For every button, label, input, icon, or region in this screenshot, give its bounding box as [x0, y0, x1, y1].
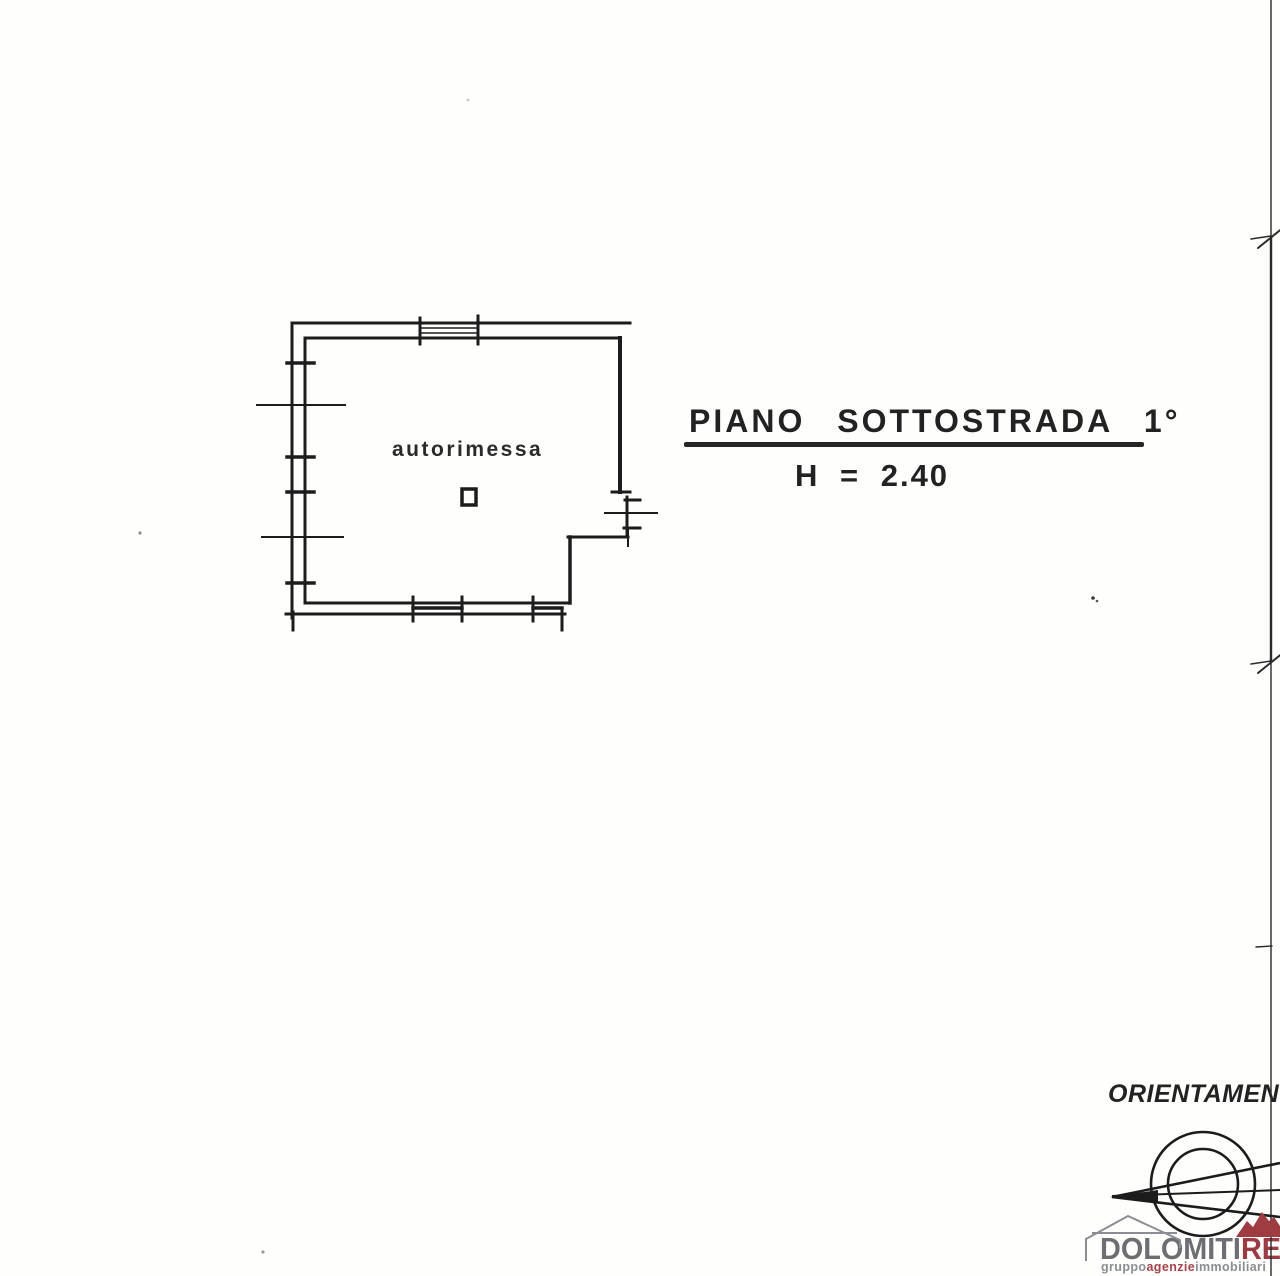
- compass-north-arrow-icon: [1110, 1132, 1280, 1236]
- title-underline: [684, 442, 1144, 447]
- scan-artifacts: [138, 99, 1098, 1254]
- plan-drawing: [0, 0, 1280, 1276]
- tagline-gruppo: gruppo: [1101, 1260, 1146, 1274]
- room-label: autorimessa: [392, 438, 543, 462]
- logo-tagline: gruppoagenzieimmobiliari: [1101, 1260, 1266, 1274]
- pillar-symbol: [462, 489, 476, 505]
- tagline-agenzie: agenzie: [1146, 1260, 1195, 1274]
- floor-plan-walls: [257, 316, 657, 630]
- tagline-immobiliari: immobiliari: [1195, 1260, 1266, 1274]
- page-title: PIANO SOTTOSTRADA 1°: [689, 403, 1181, 440]
- floor-height-label: H = 2.40: [795, 458, 949, 494]
- scanned-floor-plan-page: PIANO SOTTOSTRADA 1° H = 2.40 autorimess…: [0, 0, 1280, 1276]
- orientation-label: ORIENTAMENTO: [1108, 1080, 1280, 1109]
